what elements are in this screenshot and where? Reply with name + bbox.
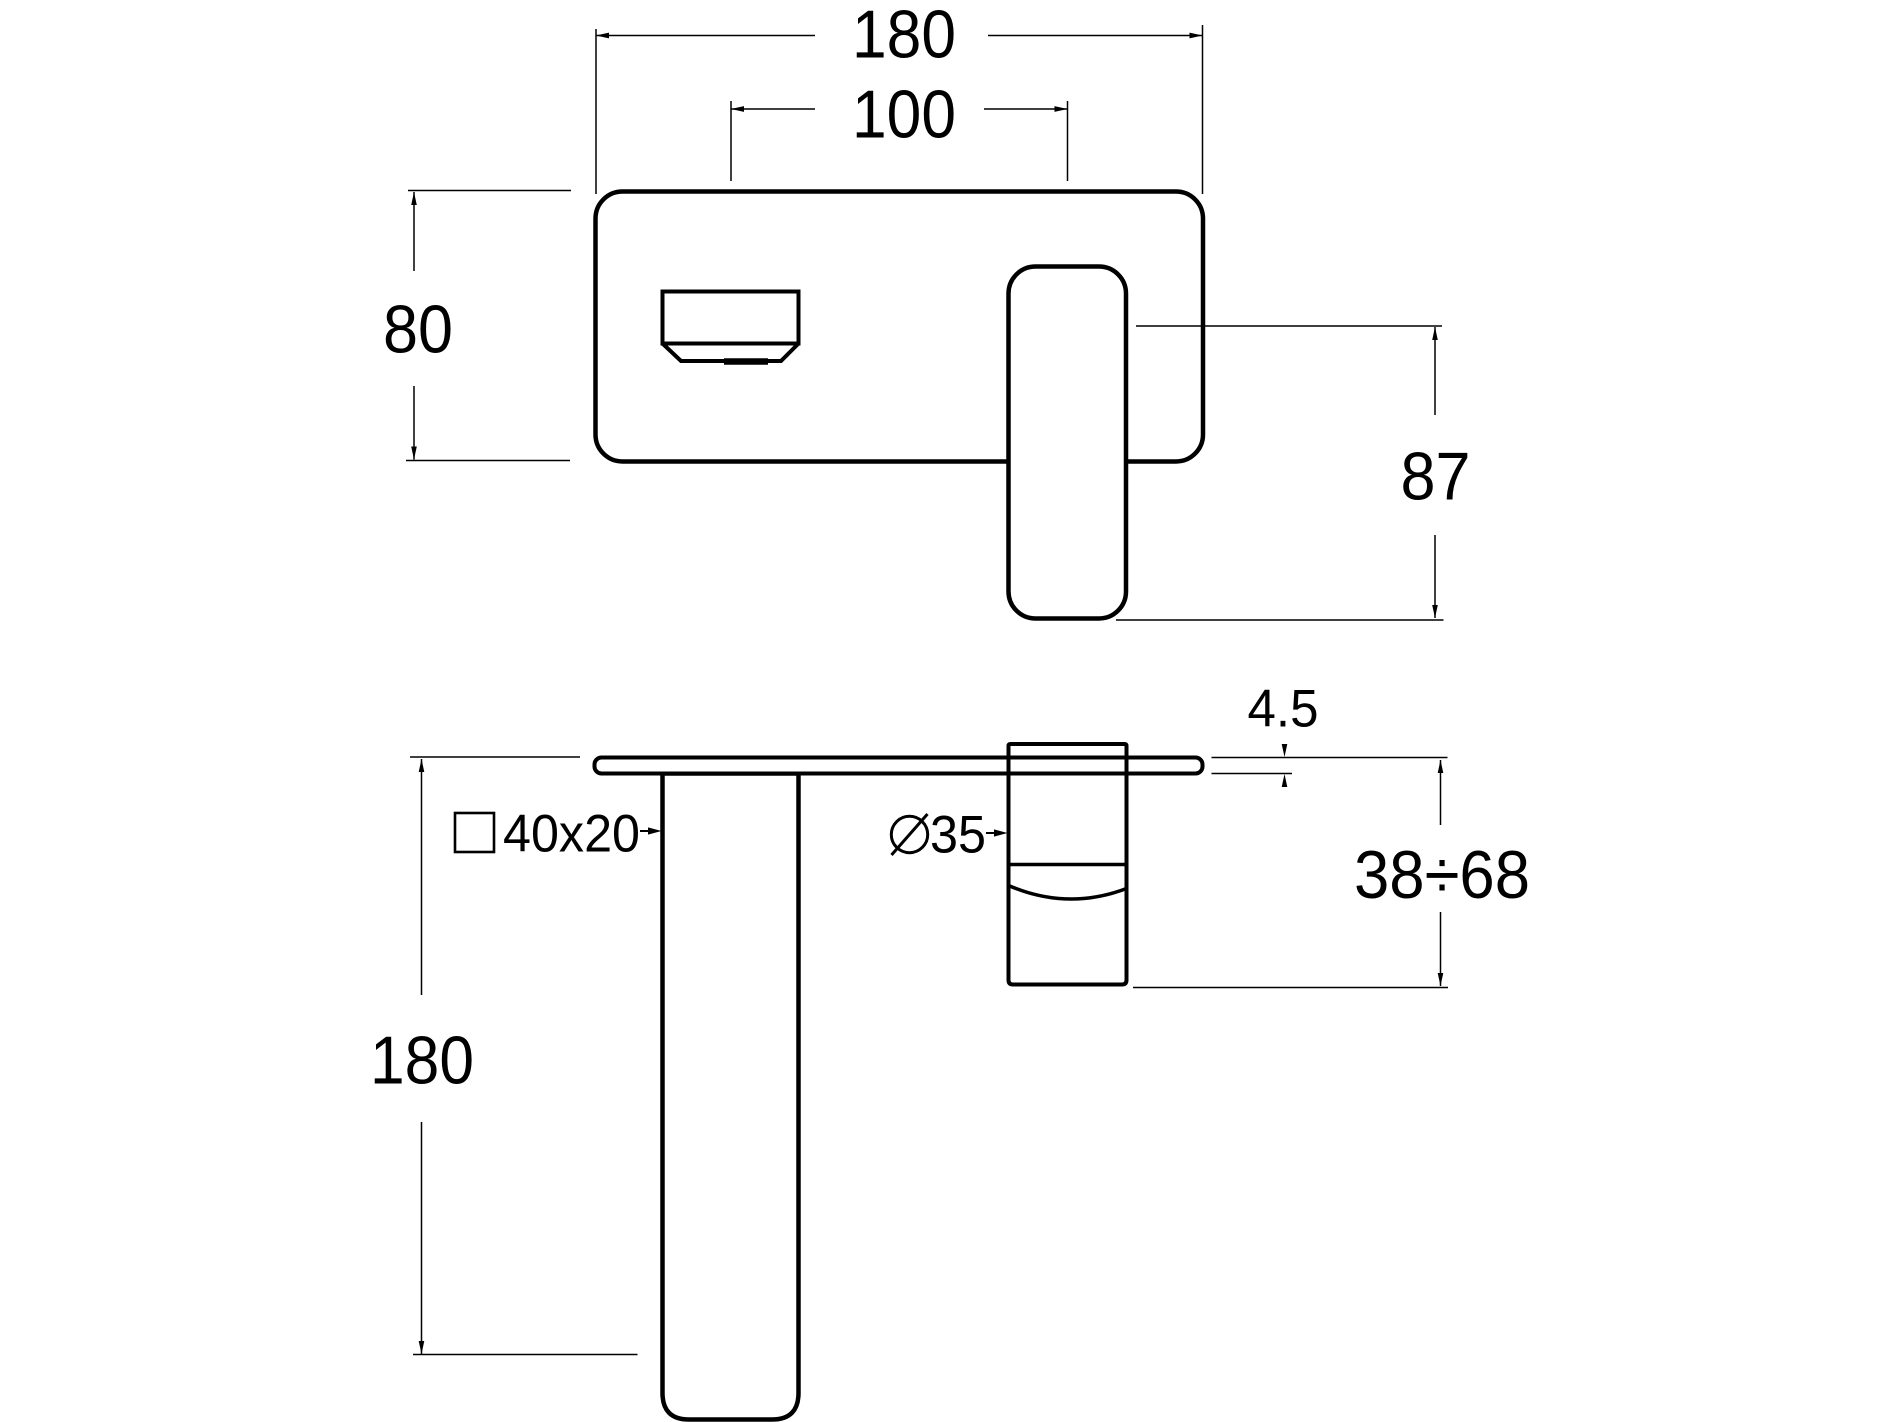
- svg-text:4.5: 4.5: [1248, 680, 1319, 739]
- svg-text:35: 35: [930, 806, 986, 865]
- svg-text:180: 180: [370, 1023, 474, 1099]
- svg-text:180: 180: [852, 0, 956, 73]
- svg-text:87: 87: [1401, 439, 1471, 515]
- svg-text:40x20: 40x20: [503, 805, 640, 864]
- svg-text:38÷68: 38÷68: [1354, 837, 1530, 913]
- svg-text:80: 80: [383, 292, 453, 368]
- svg-text:100: 100: [852, 77, 956, 153]
